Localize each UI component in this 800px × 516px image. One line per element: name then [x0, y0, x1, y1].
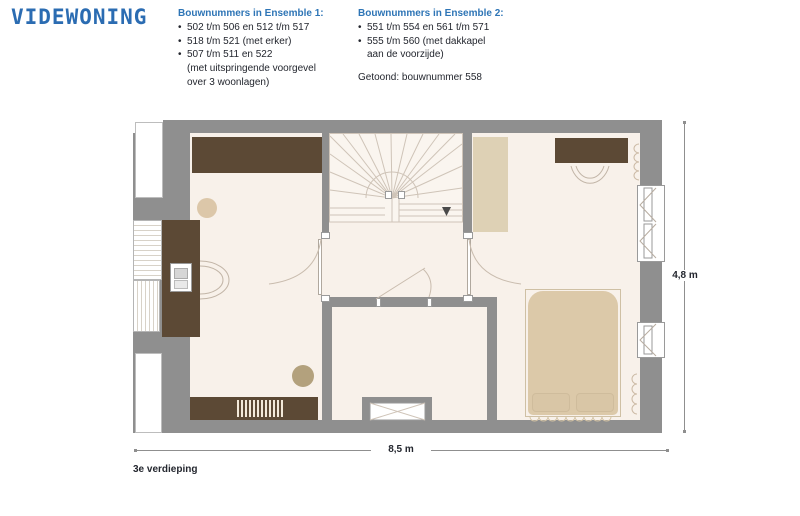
floor-label: 3e verdieping — [133, 464, 197, 475]
door-swing-study — [269, 239, 321, 284]
stair-down-arrow-icon — [442, 207, 451, 216]
dimension-end-marker — [683, 121, 686, 124]
dimension-width-label: 8,5 m — [371, 444, 431, 455]
door-swing-bedroom — [469, 239, 521, 284]
ensemble1-line: •507 t/m 511 en 522 — [178, 48, 353, 62]
door-swings — [269, 239, 521, 299]
brand-logo: VIDEWONING — [11, 5, 147, 29]
shaft — [370, 403, 425, 420]
radiators — [632, 144, 639, 414]
ensemble1-line: •502 t/m 506 en 512 t/m 517 — [178, 21, 353, 35]
ensemble1-line: •518 t/m 521 (met erker) — [178, 35, 353, 49]
ensemble2-line: •551 t/m 554 en 561 t/m 571 — [358, 21, 533, 35]
dimension-height-label: 4,8 m — [663, 270, 707, 281]
shown-unit-note: Getoond: bouwnummer 558 — [358, 71, 533, 85]
chair-study — [200, 261, 229, 299]
ensemble2-line: •555 t/m 560 (met dakkapel — [358, 35, 533, 49]
ensemble1-block: Bouwnummers in Ensemble 1: •502 t/m 506 … — [178, 7, 353, 90]
dimension-end-marker — [134, 449, 137, 452]
window-frames — [640, 188, 656, 356]
dimension-end-marker — [683, 430, 686, 433]
door-swing-bathroom — [376, 268, 431, 299]
ensemble1-line: (met uitspringende voorgevel — [178, 62, 353, 76]
plan-linework — [133, 120, 662, 433]
ensemble1-line: over 3 woonlagen) — [178, 76, 353, 90]
radiator-top — [634, 144, 639, 180]
dimension-end-marker — [666, 449, 669, 452]
ensemble2-block: Bouwnummers in Ensemble 2: •551 t/m 554 … — [358, 7, 533, 85]
bed-blanket-edge — [530, 417, 611, 421]
ensemble1-heading: Bouwnummers in Ensemble 1: — [178, 7, 353, 21]
ensemble2-heading: Bouwnummers in Ensemble 2: — [358, 7, 533, 21]
ensemble2-line: aan de voorzijde) — [358, 48, 533, 62]
floor-plan — [133, 120, 662, 433]
chair-bedroom — [571, 166, 609, 183]
radiator-bottom — [632, 374, 637, 414]
